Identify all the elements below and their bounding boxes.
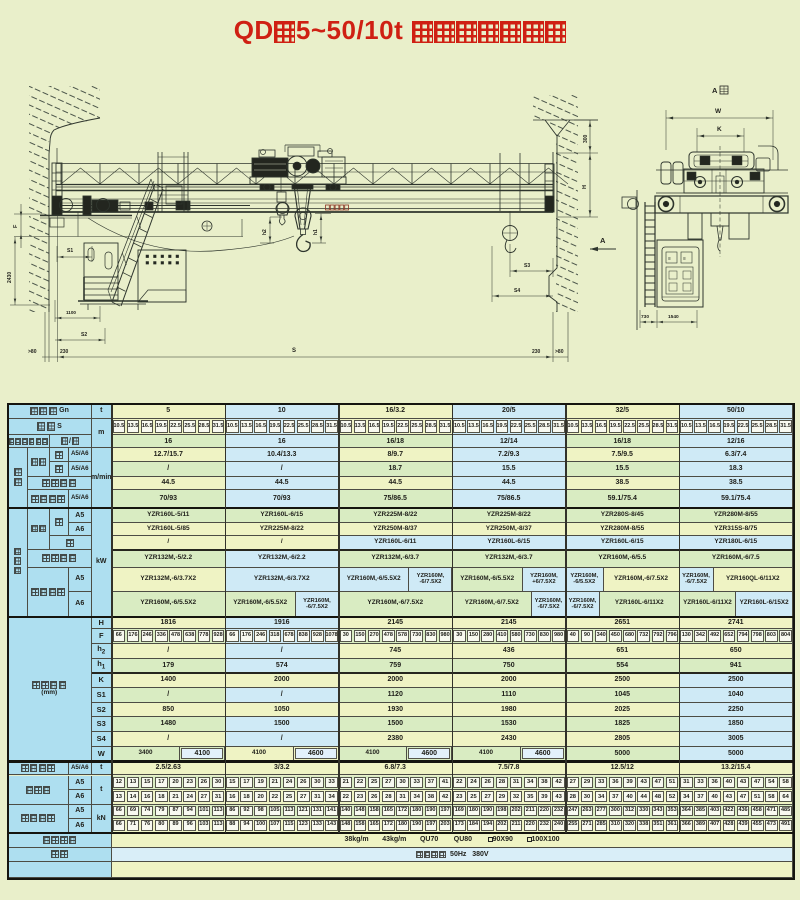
svg-text:1540: 1540 bbox=[668, 314, 679, 320]
svg-text:K: K bbox=[717, 126, 722, 133]
svg-text:730: 730 bbox=[641, 314, 649, 320]
svg-text:>80: >80 bbox=[555, 349, 564, 355]
svg-text:h2: h2 bbox=[262, 229, 268, 235]
svg-text:2430: 2430 bbox=[7, 272, 13, 283]
svg-text:1100: 1100 bbox=[66, 310, 76, 315]
svg-text:h1: h1 bbox=[313, 229, 319, 235]
svg-text:230: 230 bbox=[60, 349, 69, 355]
svg-text:S1: S1 bbox=[67, 248, 73, 254]
svg-text:≡: ≡ bbox=[683, 256, 686, 262]
svg-text:300: 300 bbox=[583, 134, 589, 143]
svg-text:A: A bbox=[712, 86, 718, 95]
svg-text:S2: S2 bbox=[81, 332, 87, 338]
svg-text:230: 230 bbox=[532, 349, 541, 355]
svg-text:F: F bbox=[13, 224, 19, 228]
svg-text:S3: S3 bbox=[524, 263, 530, 269]
svg-text:S4: S4 bbox=[514, 288, 520, 294]
svg-text:≡: ≡ bbox=[668, 256, 671, 262]
svg-text:A: A bbox=[600, 236, 606, 245]
svg-text:W: W bbox=[715, 108, 722, 115]
svg-text:H: H bbox=[582, 185, 588, 189]
svg-text:S: S bbox=[292, 348, 296, 354]
svg-text:>80: >80 bbox=[28, 349, 37, 355]
